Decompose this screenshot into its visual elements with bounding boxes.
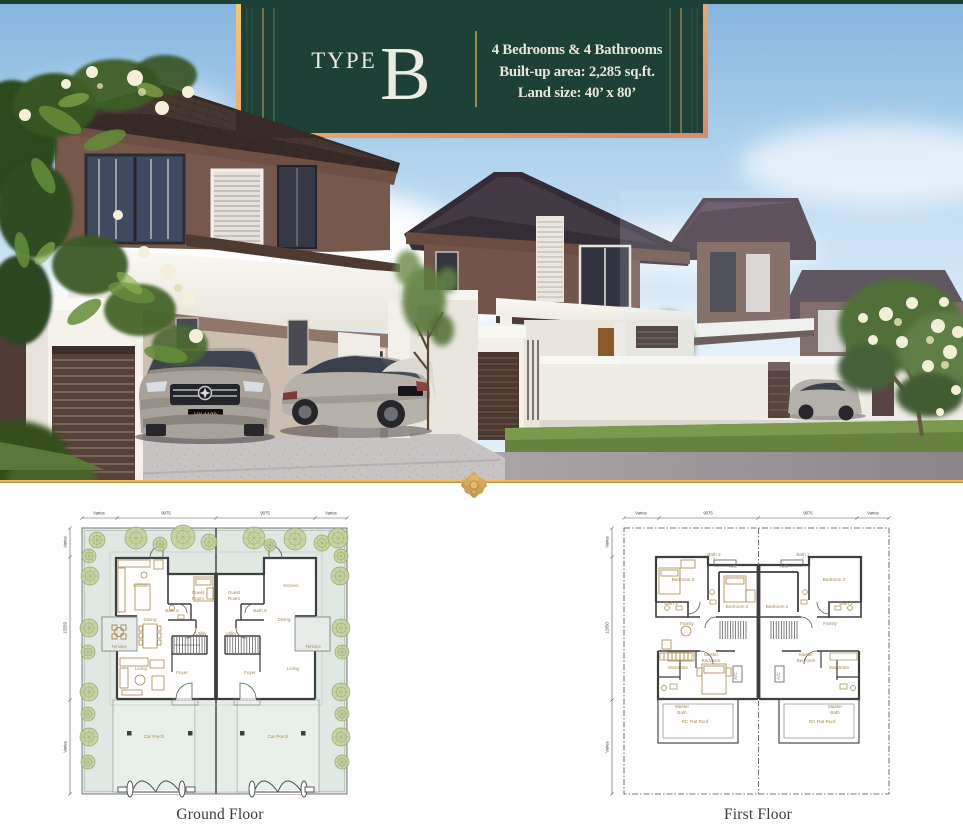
svg-text:Bedroom: Bedroom — [797, 658, 816, 663]
svg-text:Wardrobe: Wardrobe — [668, 665, 688, 670]
svg-text:Master: Master — [675, 704, 690, 709]
svg-text:A/C: A/C — [733, 671, 738, 679]
svg-text:A/C: A/C — [776, 671, 781, 679]
svg-text:Bedroom: Bedroom — [702, 658, 721, 663]
svg-text:TYPE: TYPE — [311, 48, 377, 73]
svg-text:RC Flat Roof: RC Flat Roof — [682, 719, 709, 724]
svg-text:Family: Family — [823, 621, 837, 626]
svg-text:A/C: A/C — [729, 564, 737, 569]
svg-text:Wardrobe: Wardrobe — [829, 665, 849, 670]
svg-text:Bath 3: Bath 3 — [839, 601, 853, 606]
svg-text:RC Flat Roof: RC Flat Roof — [809, 719, 836, 724]
svg-text:4 Bedrooms & 4 Bathrooms: 4 Bedrooms & 4 Bathrooms — [492, 42, 663, 58]
svg-text:12050: 12050 — [605, 622, 610, 634]
svg-text:B: B — [380, 32, 431, 116]
svg-text:9075: 9075 — [803, 511, 813, 516]
svg-text:9075: 9075 — [703, 511, 713, 516]
svg-text:Varies: Varies — [867, 511, 879, 516]
svg-text:Bath 2: Bath 2 — [796, 552, 810, 557]
svg-text:Bedroom 3: Bedroom 3 — [672, 577, 695, 582]
svg-text:Bath: Bath — [677, 710, 687, 715]
svg-text:Master: Master — [704, 652, 719, 657]
svg-text:First Floor: First Floor — [724, 806, 793, 823]
svg-text:Varies: Varies — [605, 741, 610, 753]
svg-text:Built-up area: 2,285 sq.ft.: Built-up area: 2,285 sq.ft. — [499, 64, 655, 80]
svg-text:Bedroom 2: Bedroom 2 — [726, 604, 749, 609]
svg-text:Master: Master — [828, 704, 843, 709]
svg-text:Land size: 40’ x 80’: Land size: 40’ x 80’ — [518, 85, 636, 101]
svg-text:Bath 3: Bath 3 — [664, 601, 678, 606]
svg-text:Bedroom 3: Bedroom 3 — [823, 577, 846, 582]
svg-text:Bath 2: Bath 2 — [707, 552, 721, 557]
svg-text:Bedroom 2: Bedroom 2 — [766, 604, 789, 609]
svg-text:Family: Family — [680, 621, 694, 626]
svg-text:Varies: Varies — [635, 511, 647, 516]
svg-text:Varies: Varies — [605, 536, 610, 548]
svg-text:Bath: Bath — [830, 710, 840, 715]
svg-text:A/C: A/C — [780, 564, 788, 569]
svg-text:Master: Master — [799, 652, 814, 657]
